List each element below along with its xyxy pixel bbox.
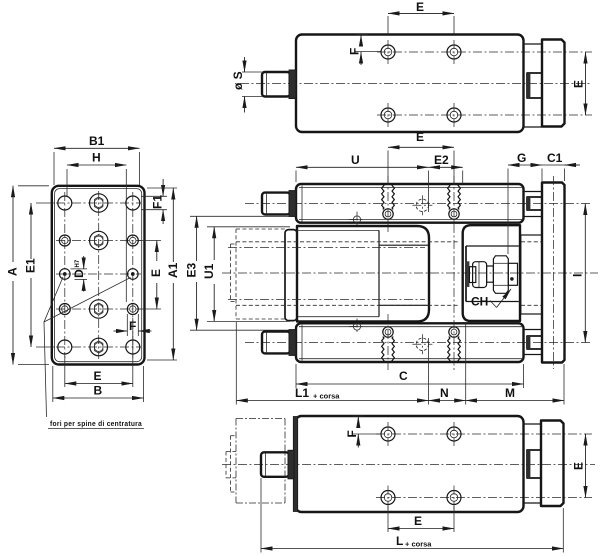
svg-text:U1: U1 [202, 263, 216, 279]
svg-text:E: E [572, 80, 586, 88]
svg-text:M: M [505, 386, 515, 400]
svg-text:E: E [572, 462, 586, 470]
svg-text:ø S: ø S [231, 71, 245, 90]
svg-text:F1: F1 [151, 195, 165, 209]
svg-text:F: F [348, 48, 362, 55]
svg-text:N: N [440, 386, 449, 400]
svg-text:E3: E3 [185, 262, 199, 277]
svg-text:H: H [92, 151, 101, 165]
svg-text:B: B [94, 384, 103, 398]
svg-text:A1: A1 [166, 262, 180, 278]
svg-text:E2: E2 [434, 153, 449, 167]
svg-text:D: D [72, 269, 86, 278]
svg-text:F: F [345, 430, 359, 437]
svg-text:C1: C1 [547, 151, 563, 165]
svg-text:+ corsa: + corsa [313, 392, 340, 401]
svg-text:L1: L1 [295, 386, 309, 400]
svg-text:E1: E1 [24, 258, 38, 273]
svg-text:G: G [517, 151, 526, 165]
svg-text:U: U [351, 153, 360, 167]
svg-text:I: I [570, 274, 584, 277]
svg-text:fori per spine di centratura: fori per spine di centratura [50, 419, 142, 428]
svg-text:E: E [416, 130, 424, 144]
svg-text:+ corsa: + corsa [405, 540, 432, 549]
svg-text:B1: B1 [89, 134, 105, 148]
svg-text:C: C [399, 369, 408, 383]
svg-text:E: E [94, 369, 102, 383]
svg-text:E: E [149, 269, 163, 277]
svg-text:L: L [396, 534, 403, 548]
svg-text:E: E [416, 0, 424, 14]
svg-text:CH: CH [471, 295, 488, 309]
svg-text:E: E [414, 514, 422, 528]
svg-text:A: A [6, 267, 20, 276]
svg-text:H7: H7 [75, 259, 81, 267]
